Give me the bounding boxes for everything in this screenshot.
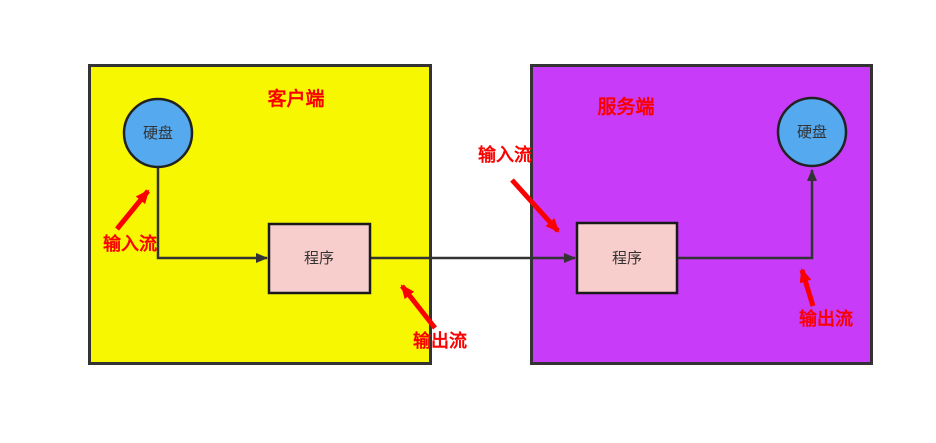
diagram-canvas: 客户端 服务端 硬盘 硬盘 程序 程序 输入流 输出流 输入流 输出流: [0, 0, 936, 443]
server-disk-label: 硬盘: [797, 123, 827, 141]
client-program-label: 程序: [304, 249, 334, 267]
server-program-label: 程序: [612, 249, 642, 267]
client-input-stream-label: 输入流: [103, 233, 157, 255]
client-server-stream-diagram: 客户端 服务端 硬盘 硬盘 程序 程序 输入流 输出流 输入流 输出流: [0, 0, 936, 443]
client-output-stream-label: 输出流: [413, 330, 467, 352]
client-disk-label: 硬盘: [143, 124, 173, 142]
client-zone-title: 客户端: [267, 87, 324, 110]
server-output-stream-label: 输出流: [799, 308, 853, 330]
server-zone-title: 服务端: [597, 95, 654, 118]
server-input-stream-label: 输入流: [478, 144, 532, 166]
